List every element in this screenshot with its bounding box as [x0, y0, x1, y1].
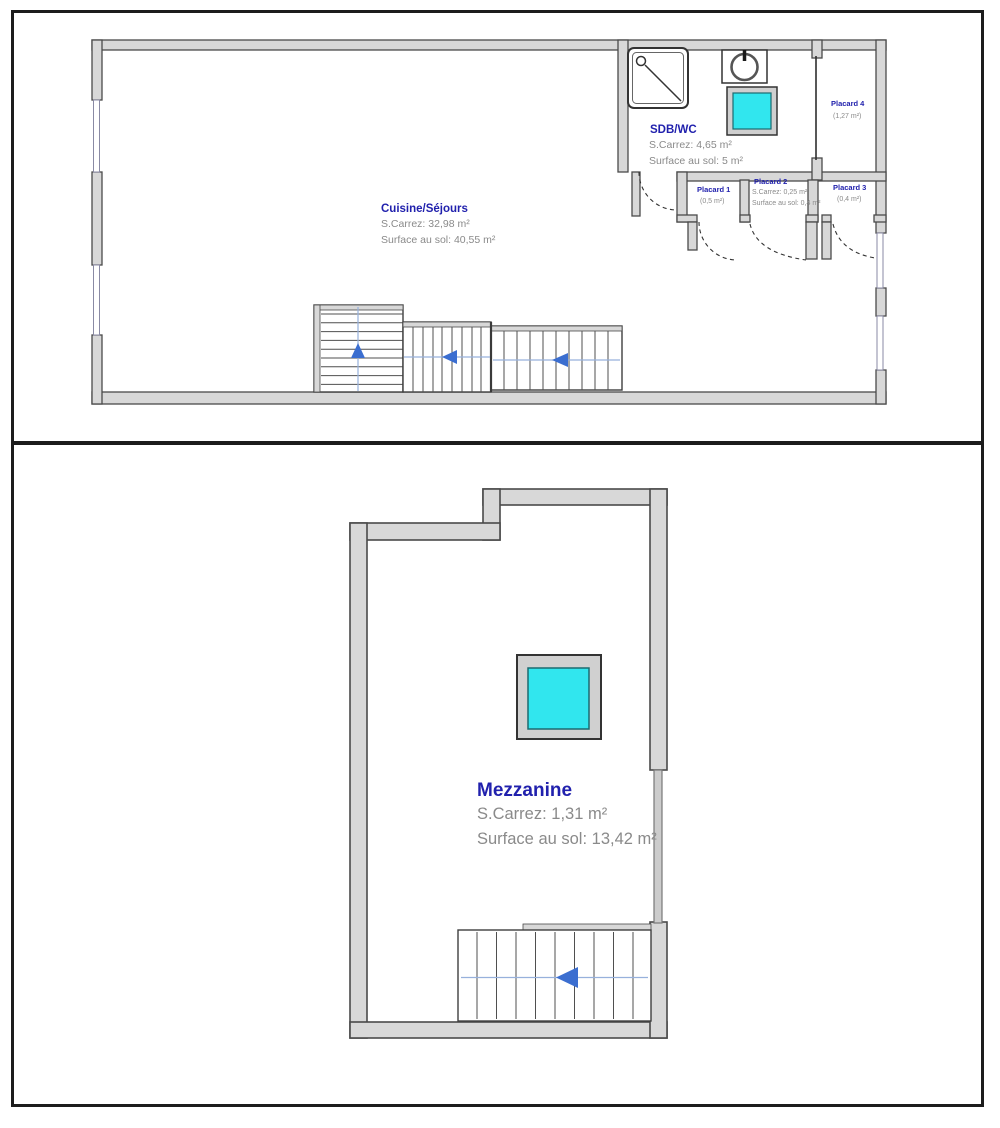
roof-window-icon	[727, 87, 777, 135]
room-floor-area-mezzanine: Surface au sol: 13,42 m²	[477, 830, 657, 848]
level-2-plan	[350, 489, 667, 1038]
room-floor-area-cuisine: Surface au sol: 40,55 m²	[381, 235, 495, 247]
staircase-level-1	[314, 305, 622, 392]
room-label-mezzanine: Mezzanine	[477, 781, 572, 802]
roof-window-icon	[517, 655, 601, 739]
room-label-cuisine: Cuisine/Séjours	[381, 203, 468, 216]
room-label-placard-4: Placard 4	[831, 100, 864, 108]
staircase-level-2	[458, 930, 651, 1021]
room-carrez-placard-2: S.Carrez: 0,25 m²	[752, 189, 807, 197]
room-carrez-mezzanine: S.Carrez: 1,31 m²	[477, 805, 607, 823]
floor-plans-canvas	[0, 0, 1000, 1128]
room-floor-area-placard-2: Surface au sol: 0,4 m²	[752, 200, 820, 208]
washing-machine-icon	[722, 50, 767, 83]
room-area-placard-4: (1,27 m²)	[833, 113, 861, 121]
room-label-placard-2: Placard 2	[754, 178, 787, 186]
room-label-sdb-wc: SDB/WC	[650, 124, 697, 137]
room-label-placard-1: Placard 1	[697, 186, 730, 194]
room-area-placard-3: (0,4 m²)	[837, 196, 862, 204]
room-carrez-cuisine: S.Carrez: 32,98 m²	[381, 219, 470, 231]
room-carrez-sdb-wc: S.Carrez: 4,65 m²	[649, 140, 732, 152]
level-1-plan	[92, 40, 886, 404]
shower-tray-icon	[628, 48, 688, 108]
room-label-placard-3: Placard 3	[833, 184, 866, 192]
room-floor-area-sdb-wc: Surface au sol: 5 m²	[649, 156, 743, 168]
room-area-placard-1: (0,5 m²)	[700, 198, 725, 206]
